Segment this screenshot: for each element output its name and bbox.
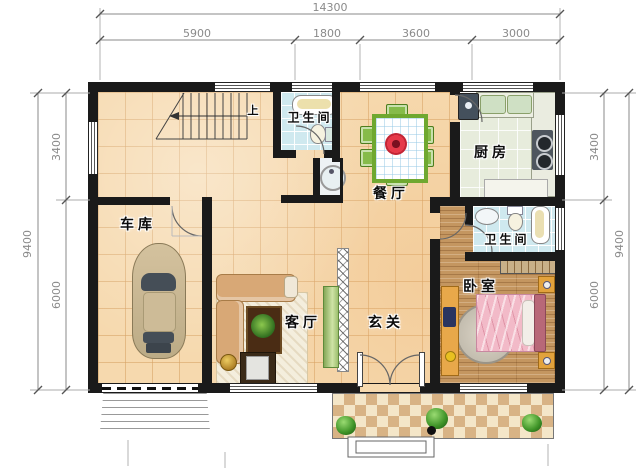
wall <box>273 92 281 153</box>
wall <box>465 206 473 225</box>
window <box>555 208 565 250</box>
dim-top-3: 3600 <box>402 27 430 40</box>
room-label-bedroom: 卧室 <box>463 276 499 296</box>
shrub-icon <box>336 416 356 435</box>
desk <box>441 286 459 376</box>
window <box>230 383 317 393</box>
wall <box>430 197 440 213</box>
bathtub <box>531 206 550 244</box>
dim-total-top: 14300 <box>313 1 348 14</box>
toilet <box>310 124 326 144</box>
wall <box>430 239 440 383</box>
bathtub-basin <box>297 99 331 109</box>
round-stool-icon <box>220 354 237 371</box>
garage-door <box>102 384 198 392</box>
window <box>88 122 98 174</box>
room-label-kitchen: 厨房 <box>474 142 510 162</box>
computer-icon <box>443 307 456 327</box>
burner-icon <box>536 153 553 170</box>
wall <box>450 122 460 205</box>
floor-plan: 14300 5900 1800 3600 3000 9400 3400 6000… <box>0 0 640 468</box>
car-rear-window <box>143 332 174 343</box>
stove <box>532 130 553 170</box>
room-label-living: 客厅 <box>285 312 321 332</box>
sink <box>480 95 506 114</box>
entry-opening <box>360 384 420 392</box>
window <box>460 383 527 393</box>
window <box>292 82 332 92</box>
porch-post-icon <box>427 426 436 435</box>
bathtub-basin <box>535 210 544 238</box>
wall <box>450 92 460 95</box>
wall <box>324 150 332 158</box>
room-label-bathroom-top: 卫生间 <box>287 109 332 126</box>
car-trunk <box>146 343 171 353</box>
entry-door-leaf <box>419 352 425 387</box>
window <box>215 82 270 92</box>
dim-right-2: 6000 <box>588 281 601 309</box>
fridge-icon <box>465 102 472 109</box>
shrub-icon <box>522 414 542 432</box>
plant-icon <box>251 314 275 338</box>
room-label-bathroom-right: 卫生间 <box>484 231 529 248</box>
room-label-garage: 车库 <box>120 214 156 234</box>
headboard <box>534 294 546 352</box>
window <box>463 82 533 92</box>
wall <box>430 197 555 206</box>
flower-centerpiece-icon <box>385 133 407 155</box>
sofa-cushion <box>284 276 298 298</box>
nightstand <box>538 276 555 293</box>
kitchen-counter <box>484 179 548 198</box>
sink <box>507 95 532 114</box>
room-label-dining: 餐厅 <box>373 183 409 203</box>
stairs-up-label: 上 <box>248 102 259 118</box>
room-label-foyer: 玄关 <box>368 312 404 332</box>
dim-top-1: 5900 <box>183 27 211 40</box>
toilet <box>508 213 523 231</box>
garage-ramp <box>100 393 210 431</box>
lamp-icon <box>543 357 551 365</box>
dim-left-2: 6000 <box>50 281 63 309</box>
dim-total-right: 9400 <box>613 230 626 258</box>
dim-top-2: 1800 <box>313 27 341 40</box>
wall <box>273 150 296 158</box>
dim-top-4: 3000 <box>502 27 530 40</box>
desk-lamp-icon <box>445 351 456 362</box>
dim-total-left: 9400 <box>21 230 34 258</box>
dim-right-1: 3400 <box>588 133 601 161</box>
wall <box>98 197 170 205</box>
fridge <box>458 93 479 120</box>
wall <box>281 195 343 203</box>
wall <box>332 92 340 162</box>
window <box>555 115 565 175</box>
porch-steps <box>348 437 434 457</box>
nightstand <box>538 352 555 369</box>
car-windshield <box>141 273 176 291</box>
faucet-icon <box>329 169 334 174</box>
burner-icon <box>536 135 553 152</box>
window <box>360 82 435 92</box>
wardrobe <box>500 260 556 274</box>
washbasin <box>475 208 499 225</box>
lamp-icon <box>543 281 551 289</box>
tv-icon <box>246 356 269 380</box>
car-roof <box>143 292 176 332</box>
wall <box>202 197 212 383</box>
planter-partition <box>323 286 339 368</box>
dim-left-1: 3400 <box>50 133 63 161</box>
entry-door-leaf <box>357 352 363 387</box>
car <box>132 243 186 359</box>
wall <box>465 252 555 261</box>
